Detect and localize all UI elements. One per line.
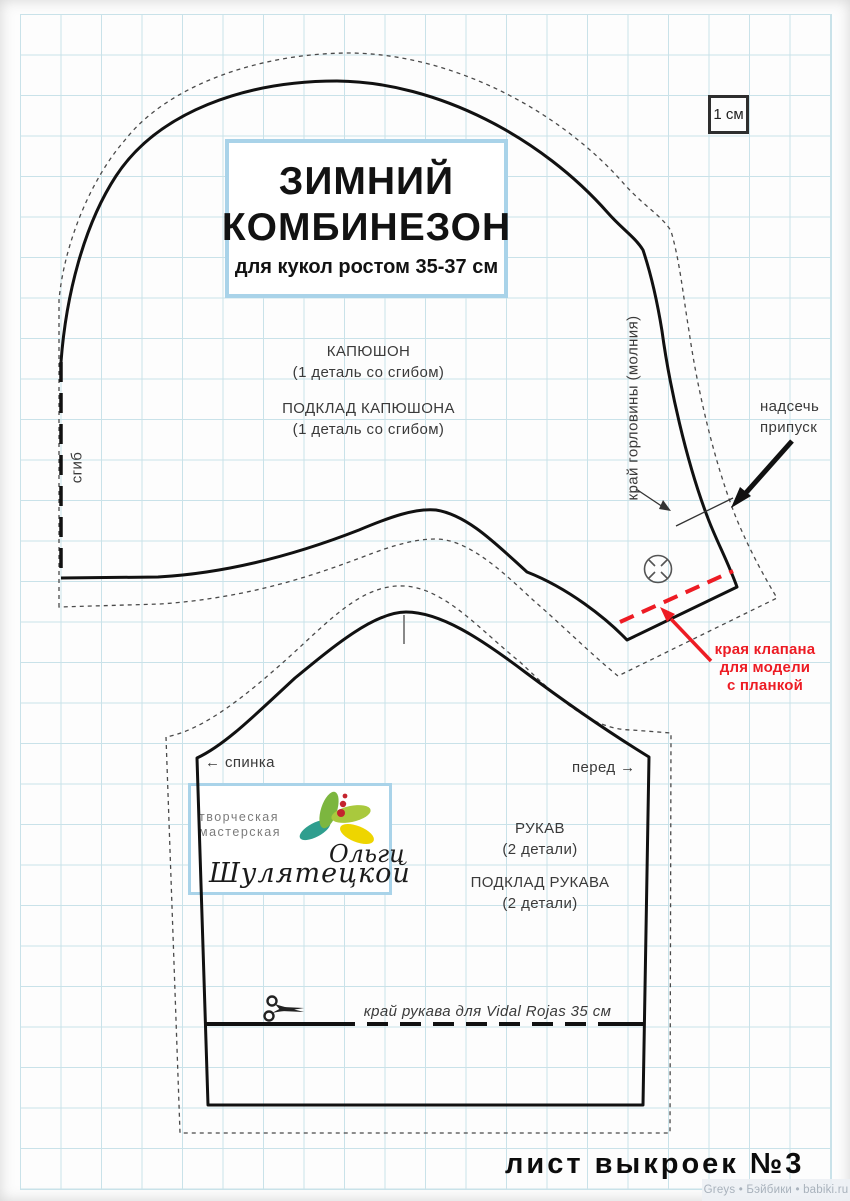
snap-button-icon [645,556,672,583]
flap-note: края клапана для модели с планкой [695,641,835,695]
notch-label: надсечь припуск [760,396,840,438]
hood-lining-label: ПОДКЛАД КАПЮШОНА [246,398,491,419]
right-arrow-icon: → [620,759,635,776]
notch-tick [676,498,733,526]
scale-label: 1 см [713,106,743,123]
fold-label: сгиб [67,438,88,498]
hood-labels: КАПЮШОН (1 деталь со сгибом) ПОДКЛАД КАП… [246,341,491,440]
neckline-label: край горловины (молния) [623,331,644,501]
sleeve-lining-note: (2 детали) [430,893,650,914]
notch-arrow [744,441,792,495]
watermark: Greys • Бэйбики • babiki.ru [702,1179,850,1201]
sleeve-lining-label: ПОДКЛАД РУКАВА [430,872,650,893]
sleeve-piece-label: РУКАВ [430,818,650,839]
sleeve-piece-note: (2 детали) [430,839,650,860]
sleeve-labels: РУКАВ (2 детали) ПОДКЛАД РУКАВА (2 детал… [430,818,650,914]
front-label: перед → [572,757,636,778]
hood-piece-note: (1 деталь со сгибом) [246,362,491,383]
sheet-number: лист выкроек №3 [505,1148,804,1181]
left-arrow-icon: ← [205,754,220,771]
neckline-arrowhead [659,500,671,511]
hood-lining-note: (1 деталь со сгибом) [246,419,491,440]
scissors-icon [265,997,305,1021]
pattern-sheet: ЗИМНИЙ КОМБИНЕЗОН для кукол ростом 35-37… [0,0,850,1201]
hood-piece-label: КАПЮШОН [246,341,491,362]
scale-box: 1 см [708,95,749,134]
back-label: ← спинка [205,752,275,773]
cut-label: край рукава для Vidal Rojas 35 см [345,1001,630,1022]
